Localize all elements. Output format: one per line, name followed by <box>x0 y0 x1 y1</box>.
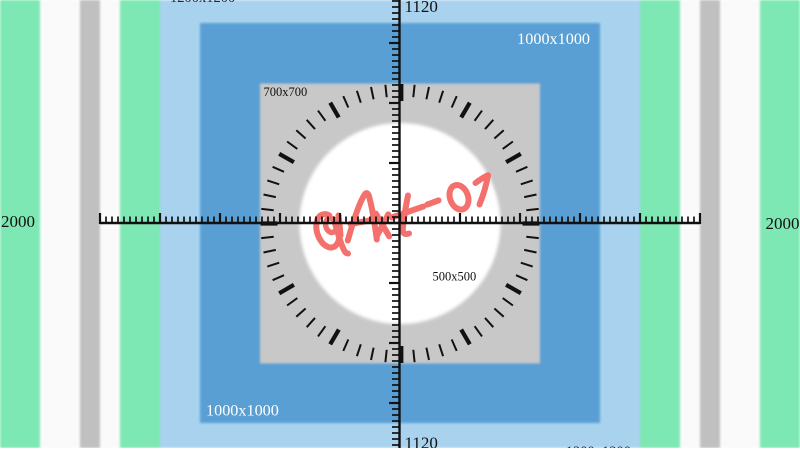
svg-text:1000x1000: 1000x1000 <box>517 30 590 48</box>
svg-text:2000: 2000 <box>766 214 800 233</box>
svg-text:700x700: 700x700 <box>264 85 308 99</box>
svg-text:1200x1200: 1200x1200 <box>566 444 631 448</box>
svg-text:1200x1200: 1200x1200 <box>170 0 235 6</box>
svg-text:500x500: 500x500 <box>433 270 477 284</box>
svg-text:2000: 2000 <box>1 212 35 231</box>
svg-text:1000x1000: 1000x1000 <box>206 402 279 420</box>
svg-text:1120: 1120 <box>405 433 438 448</box>
svg-text:1120: 1120 <box>405 0 438 16</box>
